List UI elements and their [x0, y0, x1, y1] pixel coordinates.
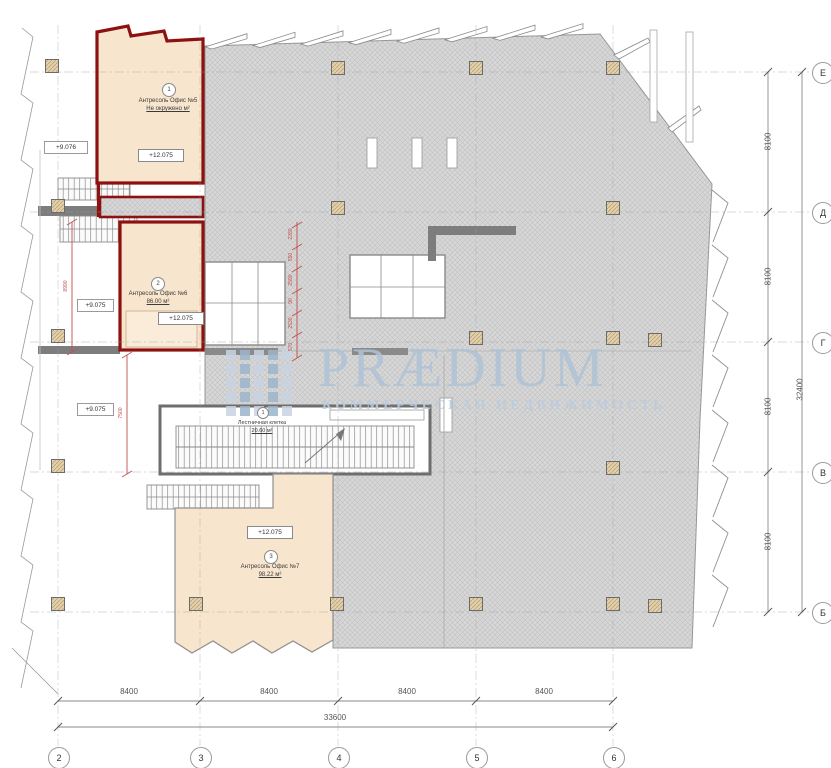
logo-dot [268, 392, 278, 402]
facade-sliver [686, 32, 693, 142]
elevation-mark: +9.076 [44, 141, 88, 154]
dim-8400: 8400 [514, 687, 574, 696]
room-2-number-badge: 2 [151, 277, 165, 291]
dim-8400: 8400 [239, 687, 299, 696]
logo-dot [226, 364, 236, 374]
dim-total-right: 32400 [796, 368, 805, 412]
shaft-slot [367, 138, 377, 168]
wall-segment [428, 226, 516, 235]
dim-8400: 8400 [377, 687, 437, 696]
watermark-brand: PRÆDIUM [318, 336, 607, 400]
stairwell-name: Лестничная клетка [212, 420, 312, 427]
axis-bubble-G: Г [812, 332, 831, 354]
stair-corridor [160, 406, 430, 474]
red-dim: 550 [288, 248, 294, 266]
axis-bubble-5: 5 [466, 747, 488, 768]
shaft-slot [412, 138, 422, 168]
dim-8100: 8100 [764, 122, 773, 162]
facade-sliver [650, 30, 657, 122]
dim-8400: 8400 [99, 687, 159, 696]
elevation-mark: +9.075 [77, 299, 114, 312]
logo-dot [254, 350, 264, 360]
logo-dot [282, 406, 292, 416]
axis-bubble-6: 6 [603, 747, 625, 768]
logo-dot [268, 406, 278, 416]
red-dim-height: 8990 [63, 271, 69, 301]
logo-dot [240, 406, 250, 416]
red-dim: 2280 [288, 225, 294, 243]
logo-dot [254, 392, 264, 402]
wall-segment [428, 235, 436, 261]
logo-dot [240, 350, 250, 360]
stairwell-number-badge: 1 [257, 407, 269, 419]
logo-dot [282, 364, 292, 374]
floor-plan-page: PRÆDIUM КОММЕРЧЕСКАЯ НЕДВИЖИМОСТЬ 1 Антр… [0, 0, 831, 768]
logo-dot [254, 364, 264, 374]
room-2-area: 86.00 м² [118, 299, 198, 307]
stair-run [147, 485, 259, 509]
axis-bubble-D: Д [812, 202, 831, 224]
dim-total-bottom: 33600 [305, 713, 365, 722]
logo-dot [226, 350, 236, 360]
room-2-name: Антресоль Офис №6 [118, 291, 198, 299]
logo-dot [240, 392, 250, 402]
watermark-tagline: КОММЕРЧЕСКАЯ НЕДВИЖИМОСТЬ [322, 398, 666, 414]
logo-dot [254, 378, 264, 388]
red-dim: 2530 [288, 314, 294, 332]
dim-8100: 8100 [764, 387, 773, 427]
red-dim-height: 7500 [118, 398, 124, 428]
logo-dot [268, 350, 278, 360]
logo-dot [268, 378, 278, 388]
stairwell-area: 20.60 м² [212, 428, 312, 435]
axis-bubble-4: 4 [328, 747, 350, 768]
logo-dot [240, 364, 250, 374]
window-block-2 [350, 255, 445, 318]
facade-fin-icon [668, 106, 701, 132]
red-dim: 90 [288, 292, 294, 310]
axis-bubble-3: 3 [190, 747, 212, 768]
axis-bubble-2: 2 [48, 747, 70, 768]
logo-dot [226, 378, 236, 388]
corner-cut-line [12, 648, 58, 694]
landing-strip [100, 197, 203, 217]
logo-dot [240, 378, 250, 388]
room-1-number-badge: 1 [162, 83, 176, 97]
shaft-slot [447, 138, 457, 168]
wall-segment [38, 346, 120, 354]
room-2-level-mark: +12.075 [158, 312, 204, 325]
dim-8100: 8100 [764, 257, 773, 297]
praedium-dots-logo-icon [226, 350, 292, 416]
elevation-mark: +9.075 [77, 403, 114, 416]
room-3-level-mark: +12.075 [247, 526, 293, 539]
room-1-area: Не окружено м² [128, 106, 208, 114]
logo-dot [268, 364, 278, 374]
axis-bubble-V: В [812, 462, 831, 484]
axis-bubble-B: Б [812, 602, 831, 624]
room-3-area: 98.22 м² [225, 572, 315, 580]
logo-dot [226, 406, 236, 416]
logo-dot [226, 392, 236, 402]
facade-fin-icon [614, 38, 650, 59]
wall-segment [38, 206, 100, 216]
window-block-1 [205, 262, 285, 345]
dim-8100: 8100 [764, 522, 773, 562]
logo-dot [282, 392, 292, 402]
room-3-name: Антресоль Офис №7 [225, 564, 315, 572]
room-3-number-badge: 3 [264, 550, 278, 564]
room-1-name: Антресоль Офис №5 [128, 98, 208, 106]
logo-dot [282, 378, 292, 388]
axis-bubble-E: Е [812, 62, 831, 84]
red-dim: 2590 [288, 271, 294, 289]
red-dim: 570 [288, 338, 294, 356]
room-1-level-mark: +12.075 [138, 149, 184, 162]
